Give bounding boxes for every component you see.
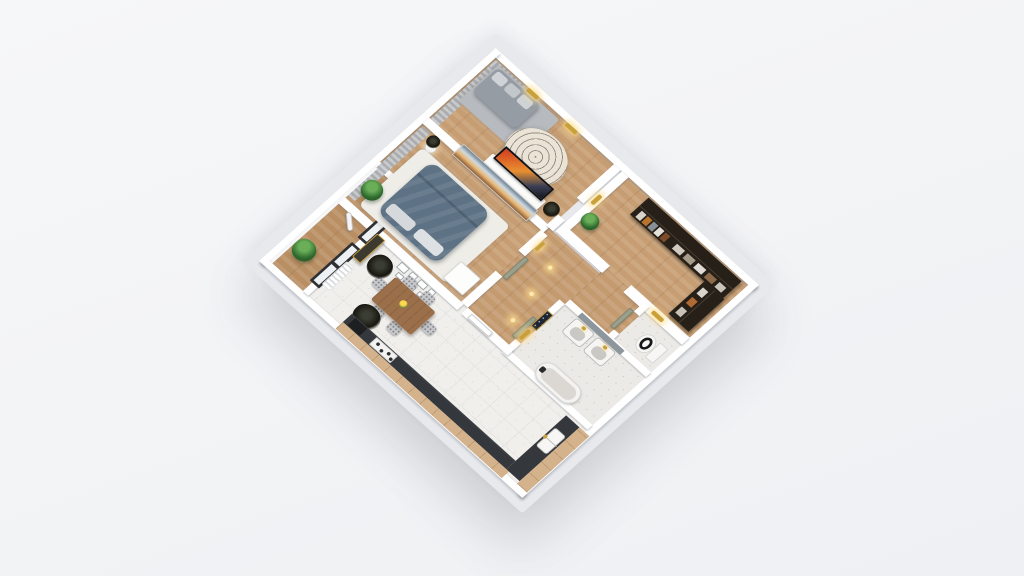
burner (379, 348, 384, 353)
flower-vase (397, 299, 409, 310)
burner (388, 357, 393, 362)
burner (386, 351, 391, 356)
burner (375, 342, 380, 347)
toilet-seat-ring (637, 335, 656, 352)
sink-divider (546, 437, 557, 447)
scene-background (0, 0, 1024, 576)
apartment-floor-plan (259, 48, 759, 498)
